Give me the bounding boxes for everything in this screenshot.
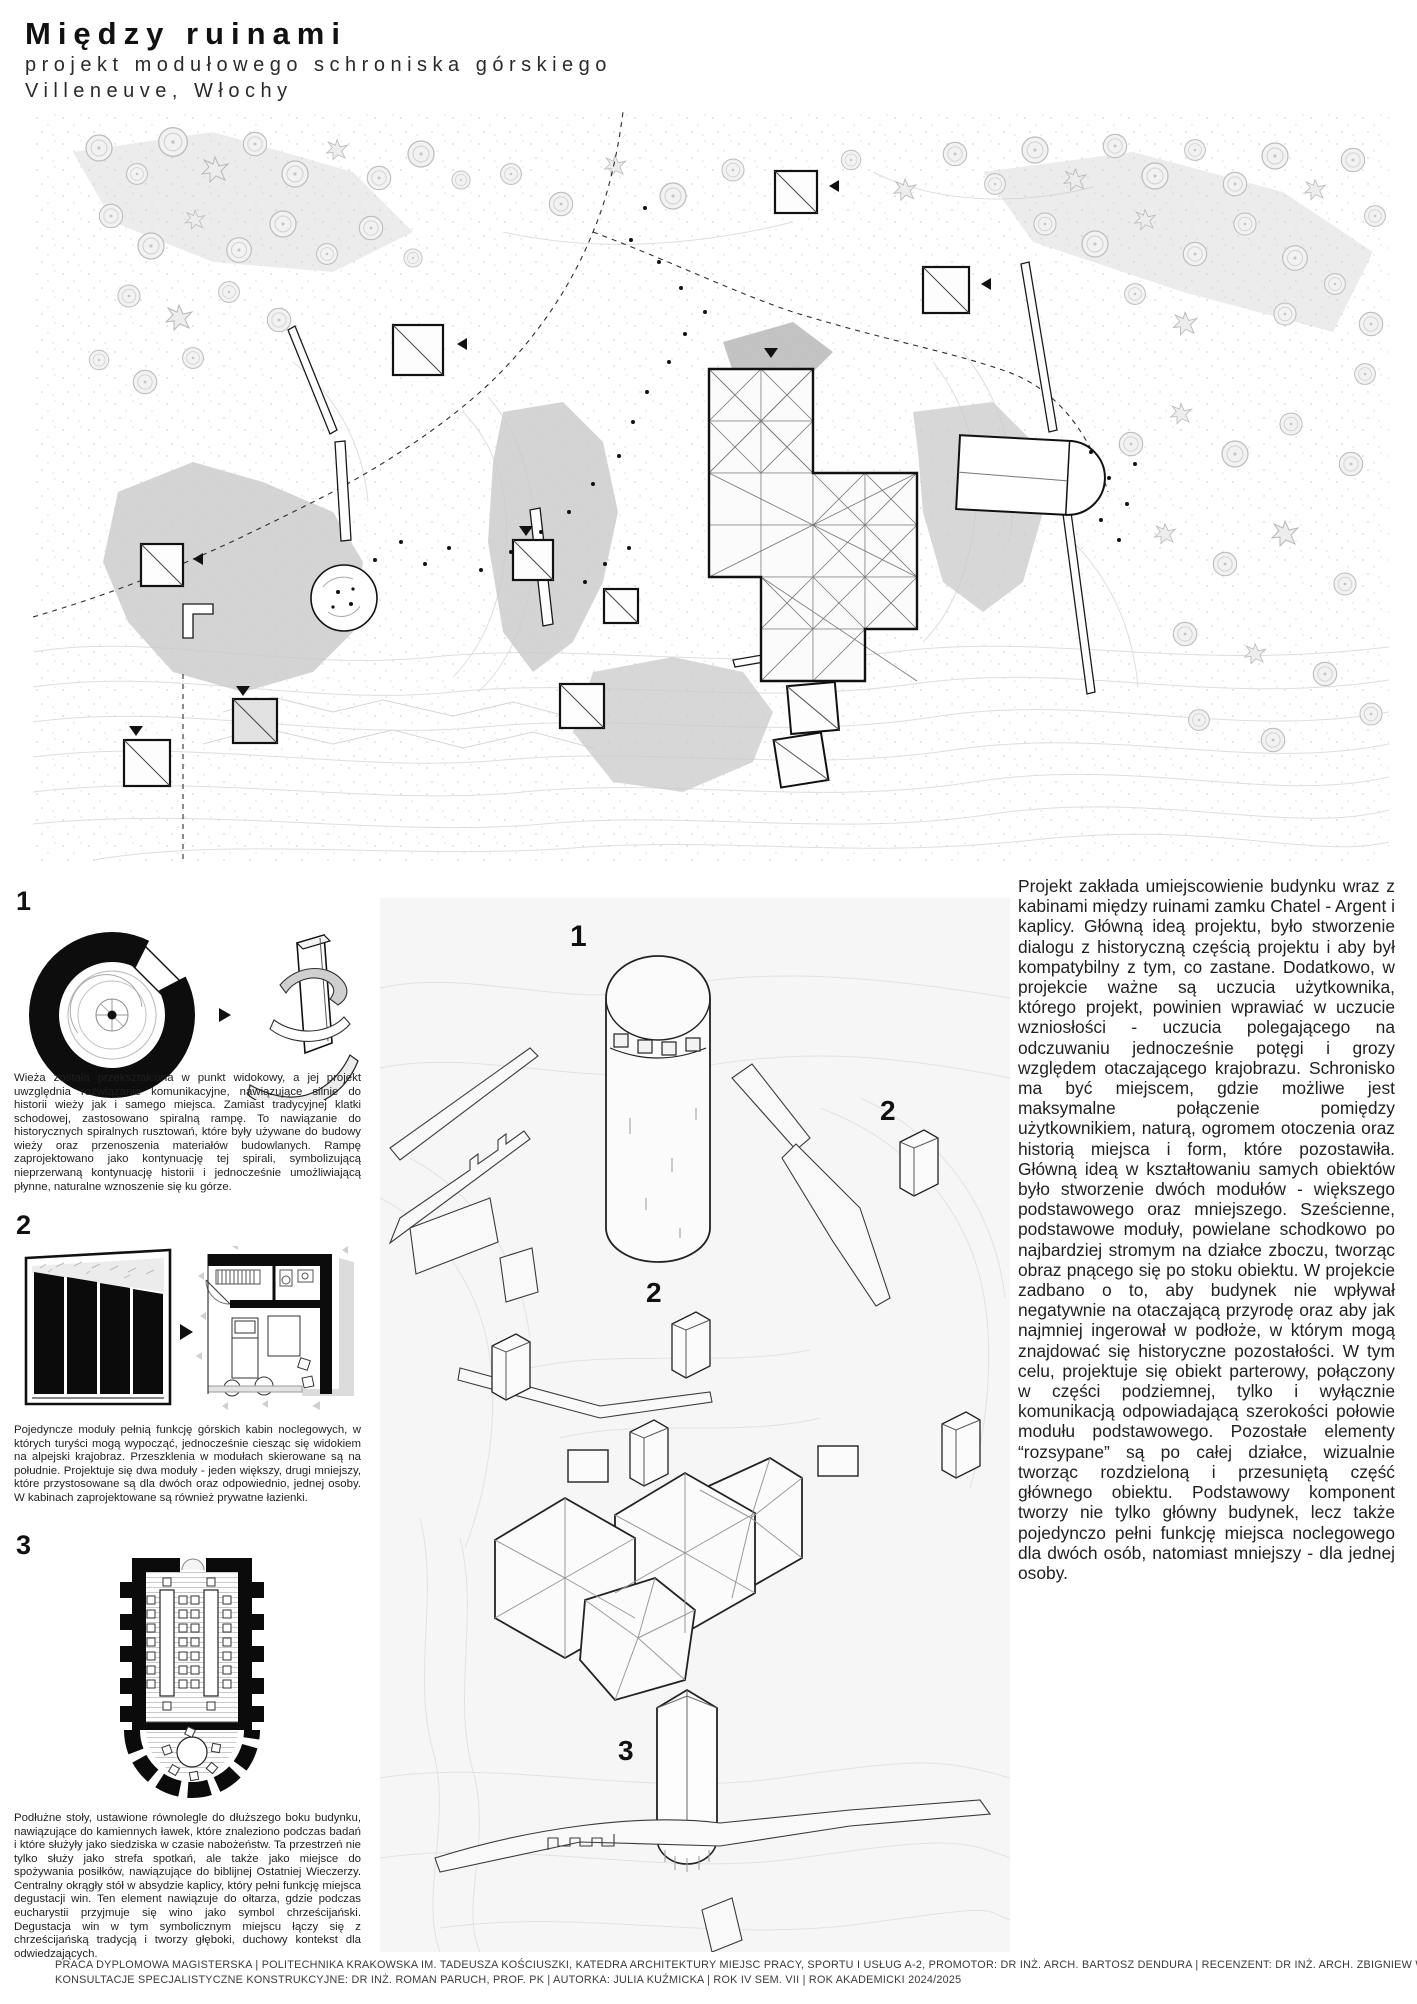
chapel-site-plan xyxy=(956,435,1107,517)
chapel-plan-drawing xyxy=(40,1556,340,1808)
page-title: Między ruinami xyxy=(25,16,612,52)
page-location: Villeneuve, Włochy xyxy=(25,78,612,104)
site-plan-drawing xyxy=(33,112,1389,862)
axon-module-cube xyxy=(630,1420,668,1486)
section-1-text: Wieża została przekształcona w punkt wid… xyxy=(14,1072,361,1194)
section-2-text: Pojedyncze moduły pełnią funkcję górskic… xyxy=(14,1424,361,1505)
arrow-right-icon xyxy=(219,1008,231,1022)
axon-module-cube xyxy=(492,1334,530,1400)
module-cabin-drawings xyxy=(12,1246,362,1418)
section-3-label: 3 xyxy=(16,1532,31,1559)
section-3-text: Podłużne stoły, ustawione równolegle do … xyxy=(14,1812,361,1961)
axon-tower xyxy=(606,956,710,1262)
axon-module-cube xyxy=(942,1412,980,1478)
axonometric-view: 1 xyxy=(380,898,1010,1952)
axon-label-module-small: 2 xyxy=(646,1277,662,1308)
footer-line-2: KONSULTACJE SPECJALISTYCZNE KONSTRUKCYJN… xyxy=(55,1973,1417,1988)
axon-label-tower: 1 xyxy=(570,920,587,953)
module-square xyxy=(560,684,604,728)
round-table xyxy=(177,1737,207,1767)
page-subtitle: projekt modułowego schroniska górskiego xyxy=(25,52,612,78)
header: Między ruinami projekt modułowego schron… xyxy=(25,16,612,104)
arrow-right-icon xyxy=(180,1324,193,1340)
axon-module-cube xyxy=(900,1130,938,1196)
project-description: Projekt zakłada umiejscowienie budynku w… xyxy=(1018,876,1395,1583)
footer: PRACA DYPLOMOWA MAGISTERSKA | POLITECHNI… xyxy=(55,1958,1417,1989)
section-2-label: 2 xyxy=(16,1212,31,1239)
axon-label-chapel: 3 xyxy=(618,1735,634,1766)
poster-page: Między ruinami projekt modułowego schron… xyxy=(0,0,1417,2004)
section-1-label: 1 xyxy=(16,888,31,915)
tower-ring xyxy=(44,931,200,1083)
module-elevation-drawing xyxy=(26,1250,170,1404)
axon-module-cube xyxy=(672,1312,710,1378)
axon-label-module-large: 2 xyxy=(880,1095,896,1126)
module-floor-plan-drawing xyxy=(196,1246,354,1410)
module-square xyxy=(604,589,638,623)
tower-site-plan xyxy=(311,565,377,631)
footer-line-1: PRACA DYPLOMOWA MAGISTERSKA | POLITECHNI… xyxy=(55,1958,1417,1973)
